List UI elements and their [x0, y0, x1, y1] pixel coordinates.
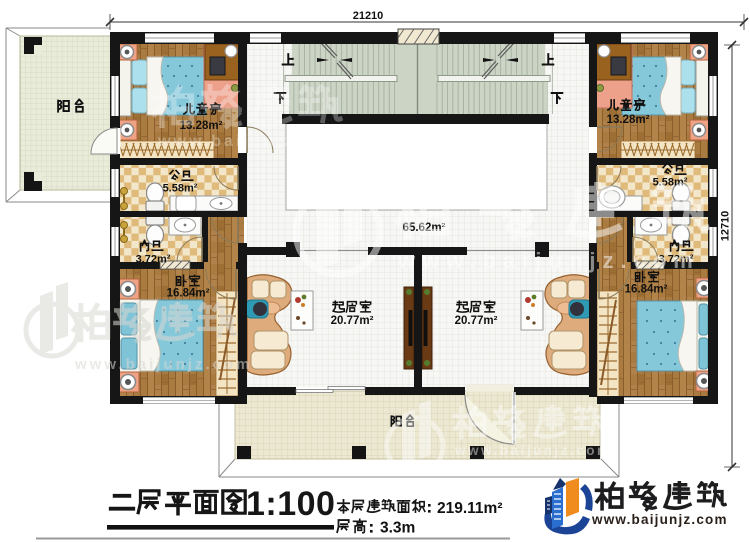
svg-text:3.3m: 3.3m [380, 520, 415, 537]
svg-text:www.baijunjz.com: www.baijunjz.com [74, 356, 252, 373]
svg-text:www.baijunjz.com: www.baijunjz.com [397, 248, 700, 273]
svg-text:www.baijunjz.com: www.baijunjz.com [591, 512, 728, 527]
svg-text:5.58m²: 5.58m² [163, 183, 198, 195]
svg-text:3.72m²: 3.72m² [136, 254, 171, 266]
svg-text:21210: 21210 [353, 10, 384, 22]
svg-text:219.11m²: 219.11m² [437, 500, 503, 517]
svg-text:20.77m²: 20.77m² [455, 315, 498, 327]
svg-text:16.84m²: 16.84m² [167, 288, 210, 300]
svg-text:16.84m²: 16.84m² [625, 284, 668, 296]
svg-text:12710: 12710 [720, 211, 732, 242]
svg-text:www.baijunjz.com: www.baijunjz.com [157, 133, 344, 150]
svg-text:13.28m²: 13.28m² [607, 114, 650, 126]
svg-text:1:100: 1:100 [246, 485, 335, 523]
svg-text:www.baijunjz.com: www.baijunjz.com [454, 443, 612, 458]
svg-text:20.77m²: 20.77m² [331, 315, 374, 327]
